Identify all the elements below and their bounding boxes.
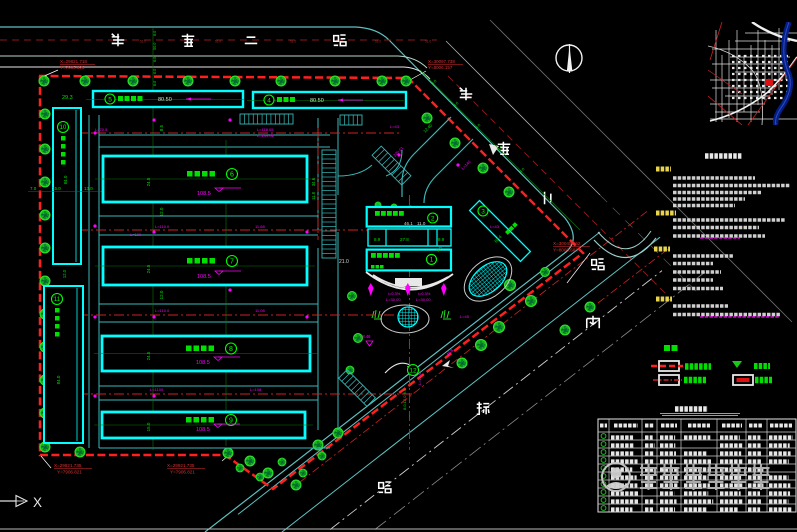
svg-text:Y=8008.688: Y=8008.688	[553, 248, 578, 253]
svg-text:6: 6	[230, 172, 234, 179]
svg-text:Y=7906.821: Y=7906.821	[170, 470, 195, 475]
svg-text:108.5: 108.5	[196, 360, 210, 366]
svg-text:27.8: 27.8	[400, 237, 409, 242]
svg-text:7.0: 7.0	[30, 186, 37, 191]
svg-text:L=43: L=43	[490, 224, 500, 229]
svg-text:11.8: 11.8	[311, 191, 316, 200]
svg-text:X: X	[33, 495, 42, 510]
svg-text:51.0: 51.0	[140, 40, 146, 44]
svg-text:8.0 12.0 6.0: 8.0 12.0 6.0	[402, 388, 407, 410]
svg-text:9: 9	[229, 418, 233, 425]
svg-text:8.0: 8.0	[153, 81, 157, 86]
svg-text:L=108: L=108	[250, 387, 262, 392]
svg-text:108.5: 108.5	[196, 427, 210, 433]
svg-text:4: 4	[267, 97, 271, 104]
svg-text:21.0: 21.0	[339, 259, 349, 265]
svg-text:Y=7905.826: Y=7905.826	[60, 65, 85, 70]
svg-text:80.50: 80.50	[158, 97, 172, 103]
svg-text:3: 3	[481, 208, 485, 215]
svg-text:L=110.0: L=110.0	[155, 224, 170, 229]
svg-text:80.50: 80.50	[310, 98, 324, 104]
svg-text:108.5: 108.5	[197, 274, 211, 280]
svg-text:24.5: 24.5	[146, 351, 151, 360]
svg-text:51.0: 51.0	[290, 40, 296, 44]
svg-text:11.0: 11.0	[417, 221, 426, 226]
svg-text:13.0: 13.0	[84, 186, 93, 191]
svg-text:L=30.00: L=30.00	[416, 297, 431, 302]
svg-text:L=149.02: L=149.02	[257, 133, 275, 138]
svg-text:46.1: 46.1	[404, 221, 413, 226]
svg-text:5: 5	[108, 96, 112, 103]
svg-text:24.5: 24.5	[146, 264, 151, 273]
svg-text:8.9: 8.9	[438, 237, 445, 242]
svg-text:L=43: L=43	[390, 124, 400, 129]
svg-text:X=29921.735: X=29921.735	[167, 463, 195, 468]
svg-text:29.3: 29.3	[62, 95, 73, 101]
svg-text:X=30097.738: X=30097.738	[428, 59, 455, 64]
svg-text:12.0: 12.0	[159, 290, 164, 299]
svg-text:34.6: 34.6	[311, 177, 316, 186]
svg-text:i=0.3%: i=0.3%	[418, 291, 431, 296]
svg-text:11: 11	[54, 297, 61, 303]
svg-text:24.5: 24.5	[146, 177, 151, 186]
svg-text:7: 7	[230, 259, 234, 266]
svg-text:12.0: 12.0	[62, 269, 67, 278]
svg-text:50.0: 50.0	[153, 43, 157, 50]
svg-text:11.08: 11.08	[255, 308, 265, 313]
svg-text:2: 2	[431, 215, 435, 222]
svg-text:84.0: 84.0	[63, 175, 68, 184]
svg-text:L=45: L=45	[460, 314, 470, 319]
svg-text:8.5: 8.5	[159, 124, 164, 131]
svg-text:51.0: 51.0	[215, 40, 221, 44]
svg-text:84.0: 84.0	[56, 375, 61, 384]
svg-text:12.0: 12.0	[159, 207, 164, 216]
svg-text:L=30.00: L=30.00	[386, 297, 401, 302]
svg-text:15.0: 15.0	[146, 422, 151, 431]
svg-text:X=30045.062: X=30045.062	[553, 241, 581, 246]
svg-text:i=0.3%: i=0.3%	[388, 291, 401, 296]
svg-text:L=110.0: L=110.0	[155, 308, 170, 313]
svg-text:L=12.0: L=12.0	[417, 372, 422, 385]
svg-text:11.68: 11.68	[255, 224, 265, 229]
svg-text:L=70.5: L=70.5	[95, 127, 108, 132]
svg-text:L=100: L=100	[130, 232, 142, 237]
svg-text:L=118.05: L=118.05	[257, 127, 274, 132]
svg-text:6.0: 6.0	[153, 69, 157, 74]
svg-text:L=1100: L=1100	[150, 387, 164, 392]
svg-text:Y=7906.821: Y=7906.821	[57, 470, 82, 475]
svg-text:51.0: 51.0	[425, 40, 431, 44]
svg-text:18.46: 18.46	[360, 334, 371, 339]
svg-text:1: 1	[430, 257, 434, 264]
svg-text:X=29821.735: X=29821.735	[54, 463, 82, 468]
svg-text:51.0: 51.0	[375, 40, 381, 44]
svg-text:X=29821.718: X=29821.718	[60, 59, 87, 64]
svg-text:8.9: 8.9	[374, 237, 381, 242]
svg-text:Y=8006.157: Y=8006.157	[428, 65, 453, 70]
svg-text:8.0: 8.0	[153, 31, 157, 36]
svg-text:10: 10	[60, 125, 67, 131]
svg-text:15.0: 15.0	[52, 186, 61, 191]
svg-text:12: 12	[409, 367, 417, 374]
svg-text:8.0: 8.0	[153, 57, 157, 62]
svg-text:108.5: 108.5	[197, 191, 211, 197]
svg-text:8: 8	[229, 346, 233, 353]
